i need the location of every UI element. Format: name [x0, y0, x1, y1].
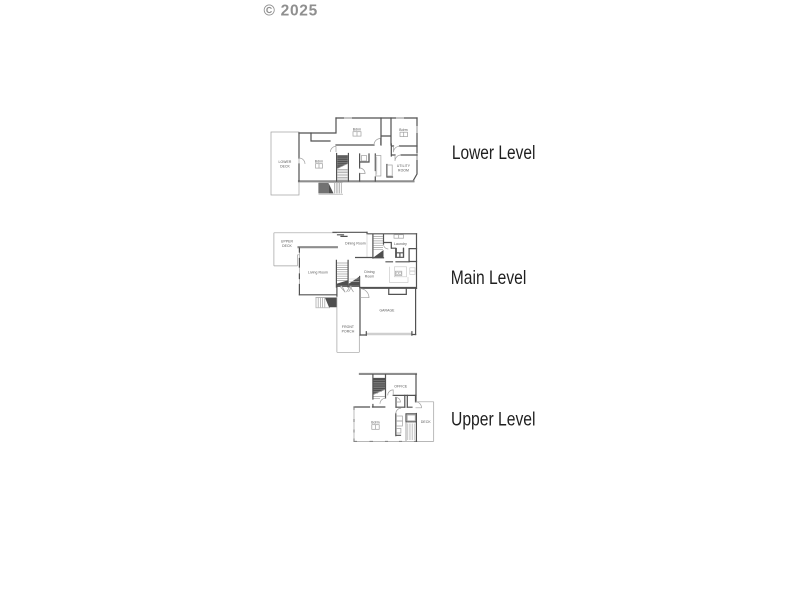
svg-text:Living Room: Living Room	[308, 271, 328, 275]
svg-text:Dining: Dining	[364, 270, 374, 274]
svg-text:© 2025: © 2025	[264, 3, 318, 20]
svg-text:PORCH: PORCH	[342, 330, 355, 334]
svg-text:Bdrm: Bdrm	[315, 160, 324, 164]
svg-text:Bdrm: Bdrm	[353, 128, 362, 132]
svg-text:Laundry: Laundry	[394, 242, 407, 246]
svg-text:UPPER: UPPER	[281, 240, 294, 244]
svg-text:GARAGE: GARAGE	[379, 309, 395, 313]
svg-text:LOWER: LOWER	[279, 160, 292, 164]
svg-text:DECK: DECK	[282, 244, 292, 248]
svg-text:Bdrm: Bdrm	[371, 421, 380, 425]
svg-text:Dining Room: Dining Room	[345, 242, 366, 246]
svg-text:FRONT: FRONT	[342, 325, 354, 329]
svg-text:ROOM: ROOM	[398, 169, 409, 173]
svg-text:Room: Room	[365, 275, 375, 279]
svg-text:DECK: DECK	[280, 165, 290, 169]
svg-text:UTILITY: UTILITY	[397, 164, 411, 168]
svg-text:OFFICE: OFFICE	[394, 385, 408, 389]
svg-text:Lower Level: Lower Level	[452, 143, 536, 164]
svg-text:Upper Level: Upper Level	[451, 409, 536, 430]
svg-text:Main Level: Main Level	[451, 268, 527, 289]
svg-text:Bdrm: Bdrm	[399, 128, 408, 132]
svg-text:DECK: DECK	[421, 420, 431, 424]
